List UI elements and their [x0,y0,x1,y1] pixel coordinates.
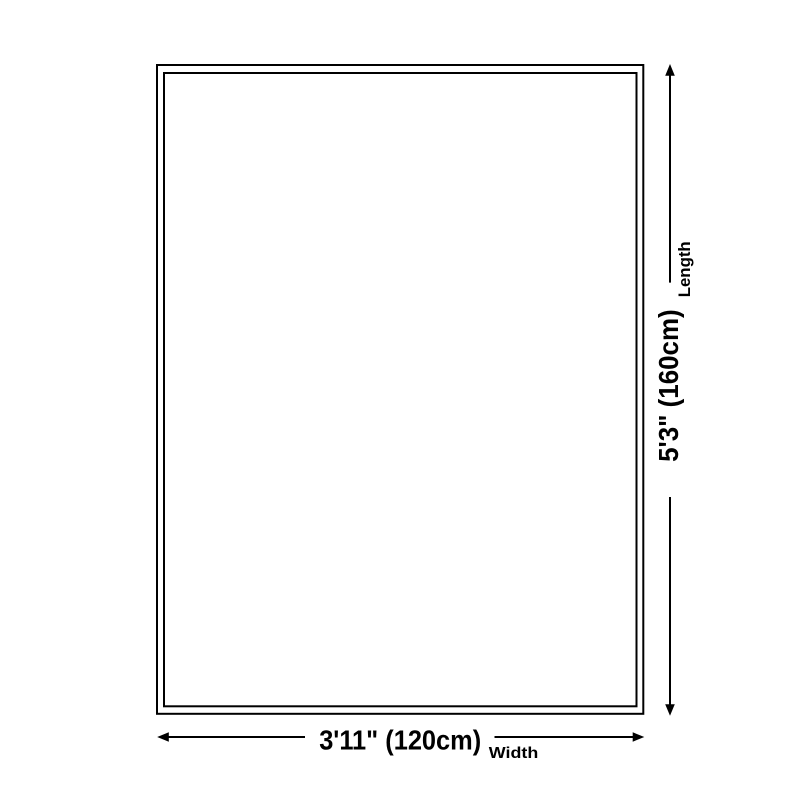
svg-text:3'11" (120cm): 3'11" (120cm) [319,725,481,756]
svg-text:Width: Width [489,745,539,762]
svg-text:Length: Length [676,241,694,297]
svg-text:5'3" (160cm): 5'3" (160cm) [653,309,684,462]
